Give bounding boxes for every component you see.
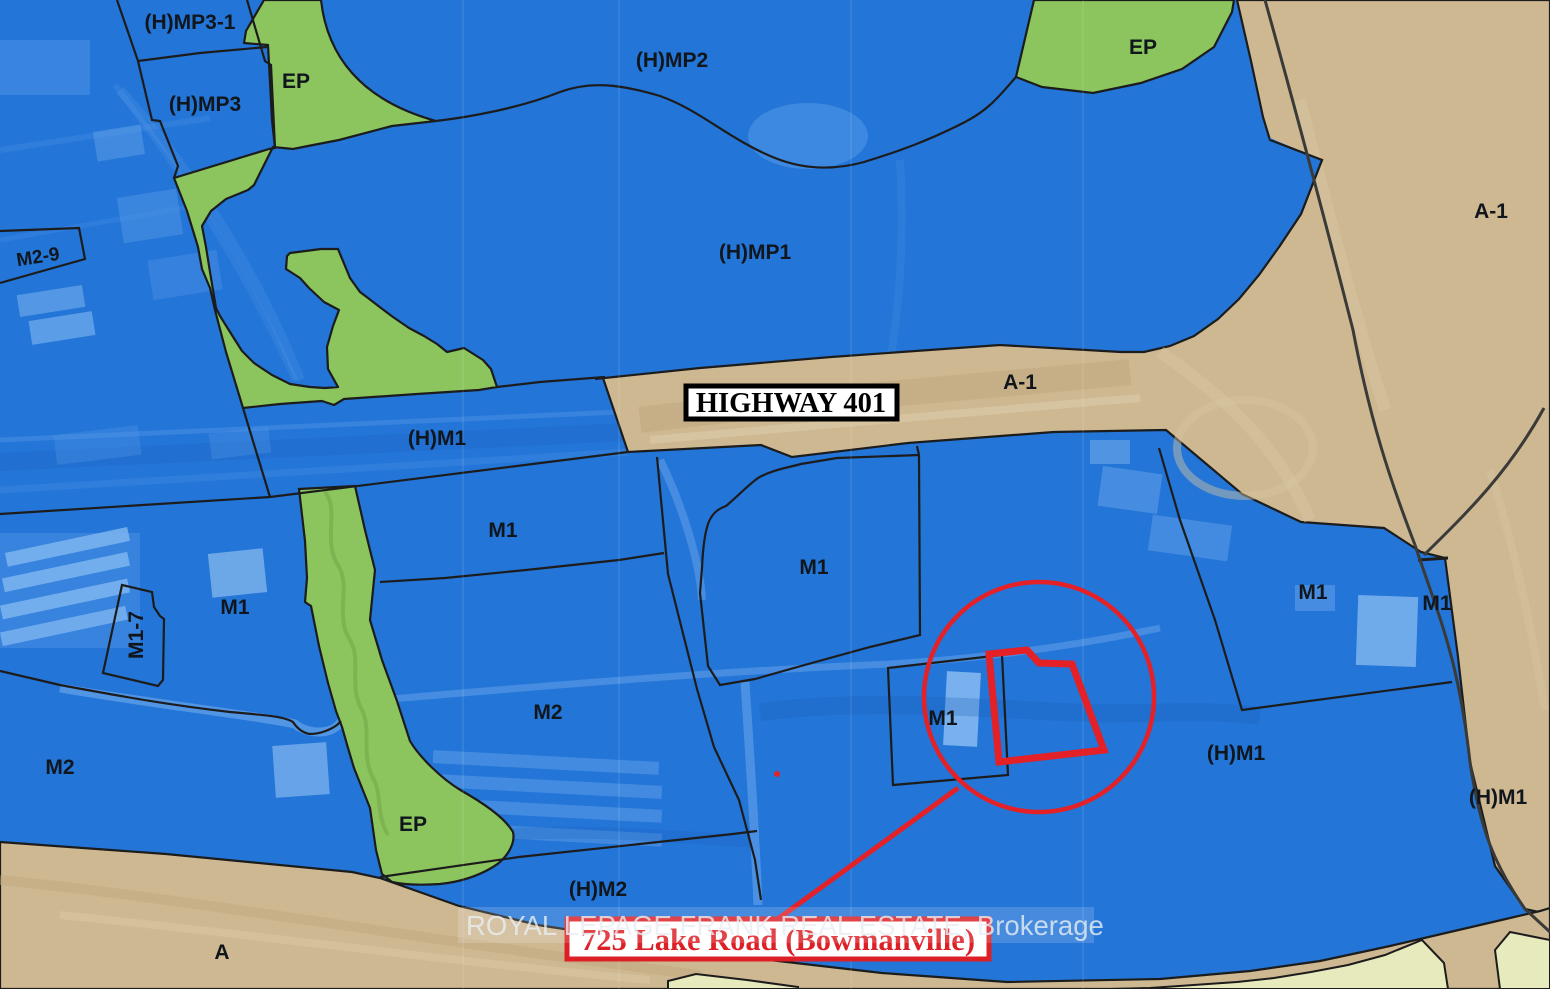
svg-text:M1: M1 [488, 519, 517, 542]
svg-text:(H)MP2: (H)MP2 [636, 49, 708, 72]
svg-text:HIGHWAY 401: HIGHWAY 401 [696, 388, 886, 419]
svg-text:(H)MP1: (H)MP1 [719, 241, 792, 264]
svg-text:(H)MP3-1: (H)MP3-1 [144, 11, 235, 34]
svg-text:ROYAL LEPAGE FRANK REAL ESTATE: ROYAL LEPAGE FRANK REAL ESTATE, Brokerag… [466, 910, 1104, 941]
svg-text:A-1: A-1 [1003, 371, 1037, 394]
svg-text:M1: M1 [220, 596, 249, 619]
svg-text:A-1: A-1 [1474, 200, 1508, 223]
svg-text:M1-7: M1-7 [125, 611, 148, 659]
svg-text:M1: M1 [799, 556, 828, 579]
svg-text:A: A [214, 941, 229, 964]
svg-text:EP: EP [282, 70, 310, 93]
svg-text:(H)MP3: (H)MP3 [169, 93, 241, 116]
svg-text:M1: M1 [1298, 581, 1327, 604]
svg-text:M1: M1 [1422, 592, 1451, 615]
svg-text:(H)M2: (H)M2 [569, 878, 627, 901]
svg-text:M1: M1 [928, 707, 957, 730]
svg-text:(H)M1: (H)M1 [408, 427, 467, 450]
svg-text:M2: M2 [533, 701, 562, 724]
svg-text:(H)M1: (H)M1 [1207, 742, 1266, 765]
svg-text:EP: EP [1129, 36, 1157, 59]
svg-text:(H)M1: (H)M1 [1469, 786, 1528, 809]
svg-text:M2: M2 [45, 756, 74, 779]
svg-text:EP: EP [399, 813, 427, 836]
